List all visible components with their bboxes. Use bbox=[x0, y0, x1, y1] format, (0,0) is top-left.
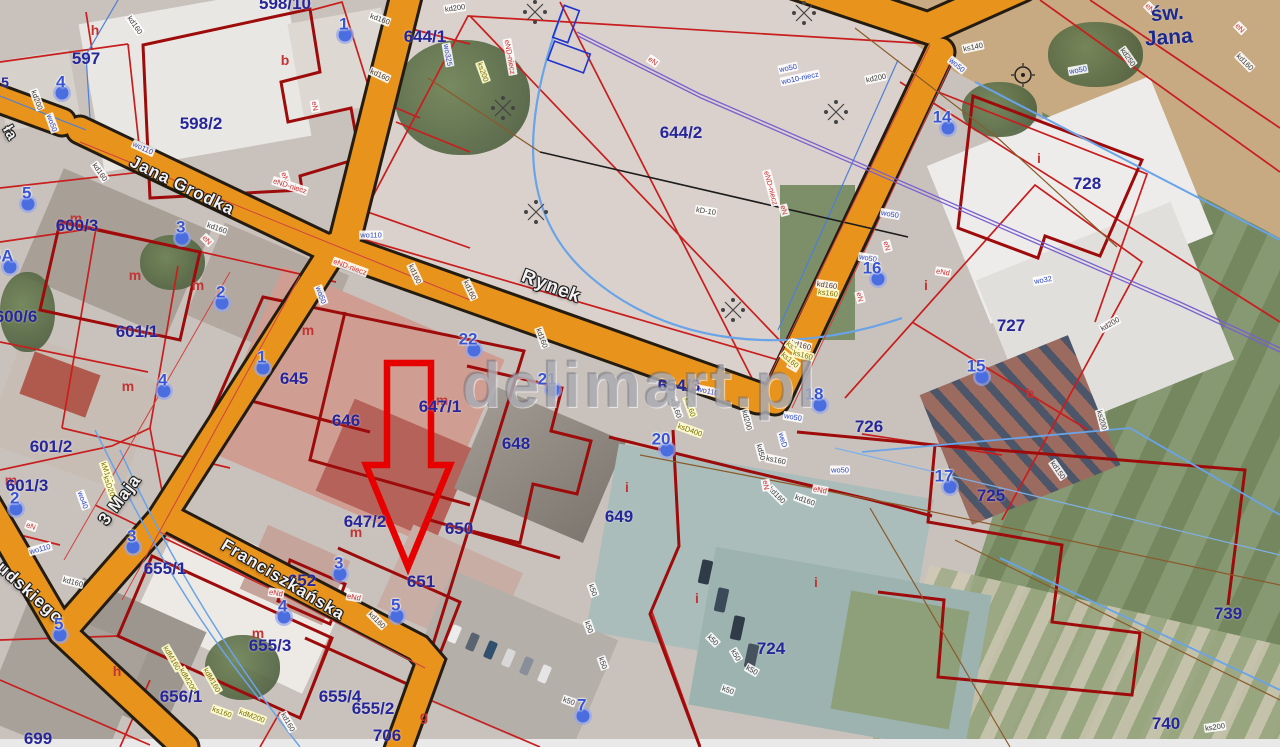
poi-marker-17[interactable]: 17 bbox=[944, 481, 957, 494]
marker-number: 1 bbox=[257, 349, 266, 366]
poi-marker-7[interactable]: 7 bbox=[577, 710, 590, 723]
marker-number: 22 bbox=[459, 331, 478, 348]
poi-marker-15[interactable]: 15 bbox=[976, 371, 989, 384]
marker-number: 5A bbox=[0, 248, 14, 265]
poi-marker-2[interactable]: 2 bbox=[216, 297, 229, 310]
marker-number: 7 bbox=[577, 697, 586, 714]
poi-marker-1[interactable]: 1 bbox=[339, 29, 352, 42]
marker-number: 1 bbox=[339, 16, 348, 33]
poi-marker-14[interactable]: 14 bbox=[942, 122, 955, 135]
poi-marker-16[interactable]: 16 bbox=[872, 273, 885, 286]
poi-marker-5[interactable]: 5 bbox=[391, 610, 404, 623]
poi-marker-5a[interactable]: 5A bbox=[4, 261, 17, 274]
marker-number: 4 bbox=[278, 598, 287, 615]
marker-number: 17 bbox=[935, 468, 954, 485]
marker-number: 4 bbox=[56, 74, 65, 91]
poi-marker-20[interactable]: 20 bbox=[661, 444, 674, 457]
marker-number: 2 bbox=[10, 490, 19, 507]
poi-marker-3[interactable]: 3 bbox=[127, 541, 140, 554]
poi-marker-3[interactable]: 3 bbox=[176, 232, 189, 245]
marker-number: 15 bbox=[967, 358, 986, 375]
marker-number: 3 bbox=[127, 528, 136, 545]
marker-number: 5 bbox=[54, 616, 63, 633]
marker-number: 2 bbox=[216, 284, 225, 301]
watermark: delimart.pl bbox=[462, 348, 819, 422]
marker-number: 5 bbox=[22, 185, 31, 202]
marker-number: 3 bbox=[176, 219, 185, 236]
poi-marker-5[interactable]: 5 bbox=[22, 198, 35, 211]
poi-marker-4[interactable]: 4 bbox=[278, 611, 291, 624]
poi-marker-3[interactable]: 3 bbox=[334, 568, 347, 581]
map-viewport[interactable]: kd200kd160kd160kd160kd200kd160kd160kd160… bbox=[0, 0, 1280, 747]
poi-marker-4[interactable]: 4 bbox=[56, 87, 69, 100]
marker-number: 5 bbox=[391, 597, 400, 614]
marker-number: 4 bbox=[158, 372, 167, 389]
poi-marker-5[interactable]: 5 bbox=[54, 629, 67, 642]
poi-marker-2[interactable]: 2 bbox=[10, 503, 23, 516]
marker-number: 14 bbox=[933, 109, 952, 126]
poi-marker-4[interactable]: 4 bbox=[158, 385, 171, 398]
marker-number: 16 bbox=[863, 260, 882, 277]
marker-number: 20 bbox=[652, 431, 671, 448]
poi-marker-1[interactable]: 1 bbox=[257, 362, 270, 375]
marker-number: 3 bbox=[334, 555, 343, 572]
